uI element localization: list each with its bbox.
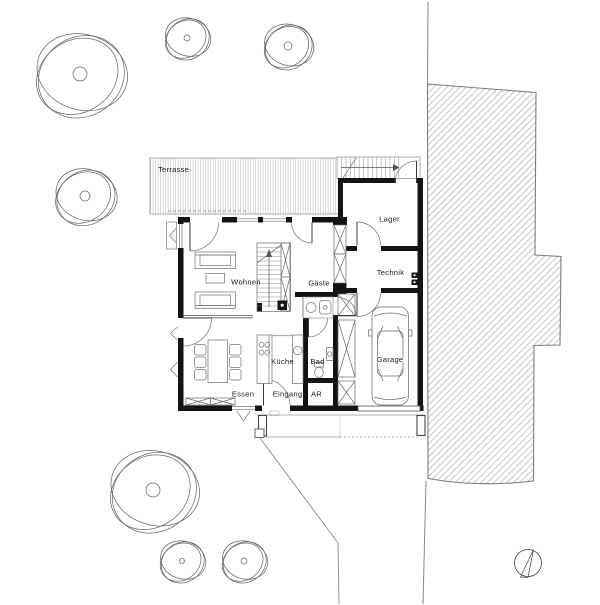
tree-trunk: [241, 558, 247, 564]
window-chevron: [171, 327, 178, 340]
tree: [158, 10, 217, 68]
exterior-stair: [337, 157, 420, 179]
room-label-technik: Technik: [377, 268, 405, 277]
door-swing: [292, 223, 313, 244]
tree-trunk: [146, 483, 160, 497]
bath-sink: [327, 348, 334, 361]
room-label-essen: Essen: [232, 390, 254, 399]
tree-trunk: [73, 67, 87, 81]
room-label-garage: Garage: [377, 355, 404, 364]
windows: [167, 219, 287, 421]
property-line-bottom: [423, 481, 426, 604]
room-label-lager: Lager: [379, 215, 400, 224]
window-chevron: [170, 228, 177, 243]
washbasins: [303, 297, 333, 318]
tree-trunk: [184, 35, 190, 41]
floor-plan-drawing: Terrasse Wohnen Gäste Lager Technik Küch…: [0, 0, 600, 605]
stair-direction-arrowhead: [266, 249, 272, 257]
room-label-terrasse: Terrasse: [158, 165, 189, 174]
x-box: [338, 381, 355, 404]
tree: [153, 533, 212, 591]
tree: [46, 159, 126, 237]
technik-panels: [412, 273, 418, 286]
north-arrow: [515, 550, 542, 578]
room-label-kueche: Küche: [271, 357, 294, 366]
tree: [256, 16, 321, 79]
door-swing: [309, 318, 328, 337]
driveway-hatched-parcel: [428, 84, 562, 484]
tree-trunk: [80, 191, 90, 201]
floor-plan-page: Terrasse Wohnen Gäste Lager Technik Küch…: [0, 0, 600, 605]
x-box: [338, 320, 355, 377]
tree: [215, 533, 274, 591]
room-label-eingang: Eingang: [273, 390, 303, 399]
window-chevron: [171, 362, 178, 377]
x-box: [211, 398, 236, 405]
coffee-table: [206, 274, 225, 284]
room-label-bad: Bad: [310, 357, 324, 366]
room-label-ar: AR: [311, 390, 322, 399]
dining-table: [208, 340, 228, 383]
garage-door-panel: [358, 406, 420, 411]
window-sill-box: [167, 222, 177, 249]
room-label-wohnen: Wohnen: [231, 278, 261, 287]
tree: [22, 19, 141, 135]
porch-post: [417, 416, 425, 436]
x-box: [281, 243, 290, 277]
door-swing: [190, 223, 219, 252]
x-box: [186, 398, 211, 405]
sofa: [195, 292, 236, 309]
tree: [96, 436, 212, 549]
trees-group: [22, 10, 321, 591]
tree-trunk: [284, 42, 292, 50]
gate-post: [255, 429, 264, 438]
property-line-diagonal: [260, 438, 339, 604]
x-box: [334, 254, 346, 283]
tree-trunk: [180, 559, 185, 564]
porch: [255, 415, 425, 438]
door-swing: [357, 222, 381, 246]
property-line-top: [428, 2, 429, 84]
x-box: [334, 225, 346, 254]
sofa: [195, 252, 236, 269]
door-swing: [184, 318, 212, 346]
downspout-marker: [237, 411, 250, 421]
room-label-gaeste: Gäste: [308, 279, 330, 288]
